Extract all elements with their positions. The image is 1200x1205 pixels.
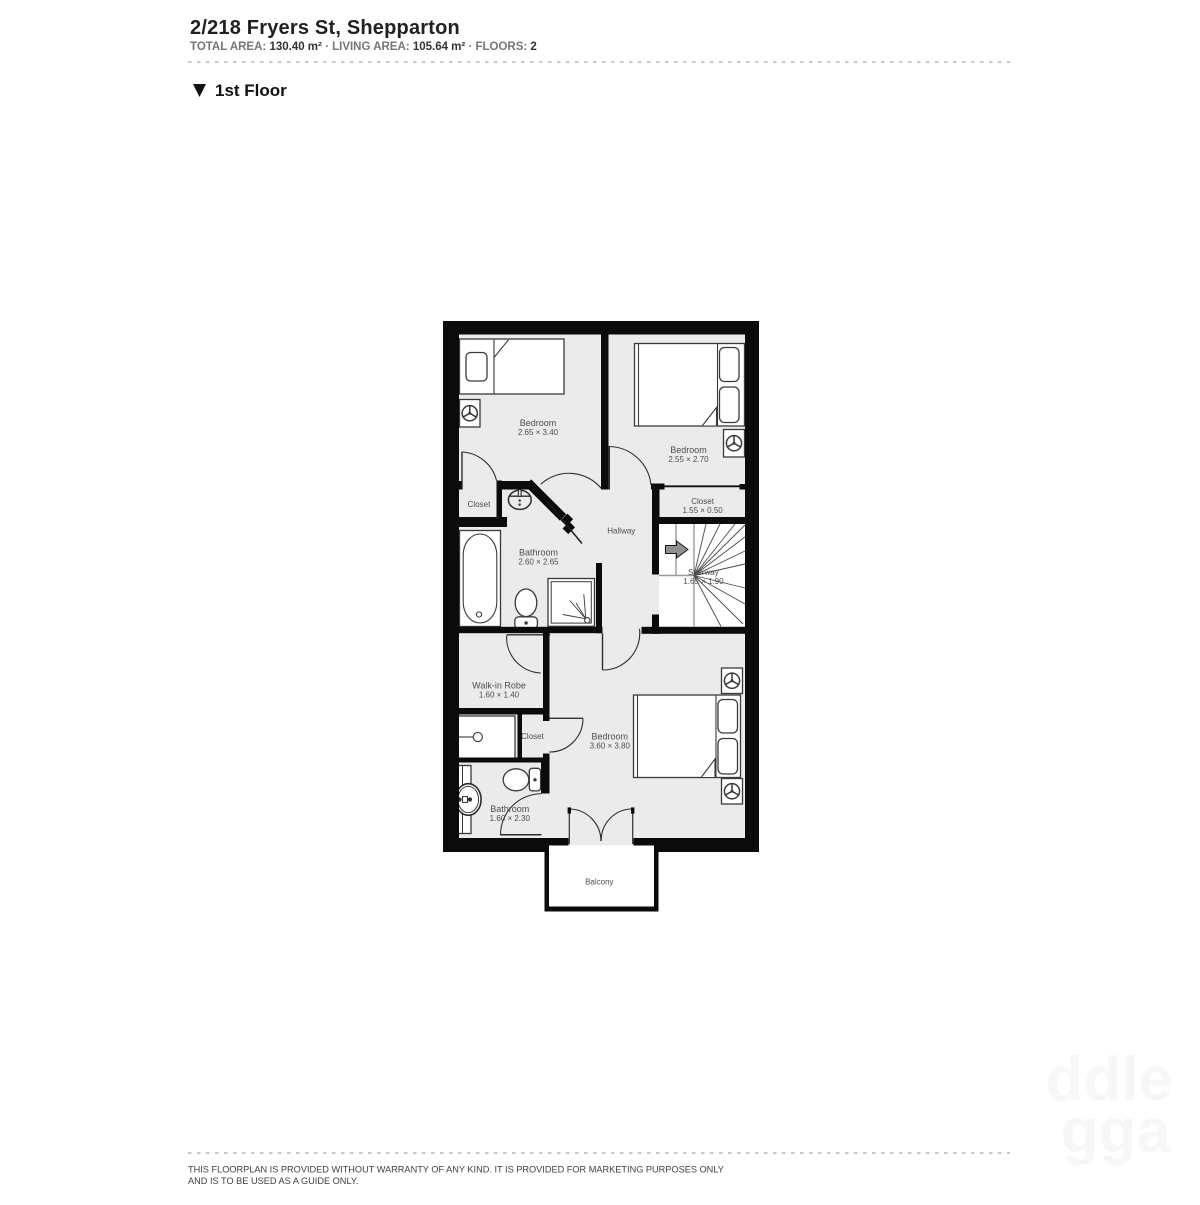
- svg-text:Stairway1.65 × 1.90: Stairway1.65 × 1.90: [683, 568, 724, 586]
- svg-text:Bedroom2.65 × 3.40: Bedroom2.65 × 3.40: [518, 418, 559, 437]
- svg-text:Bathroom2.60 × 2.65: Bathroom2.60 × 2.65: [518, 548, 559, 567]
- svg-text:2/218 Fryers St, Shepparton: 2/218 Fryers St, Shepparton: [190, 17, 460, 39]
- svg-text:Hallway: Hallway: [607, 527, 635, 536]
- svg-text:Bedroom2.55 × 2.70: Bedroom2.55 × 2.70: [668, 445, 709, 464]
- svg-text:gga: gga: [1061, 1097, 1172, 1166]
- svg-text:Bedroom3.60 × 3.80: Bedroom3.60 × 3.80: [590, 732, 631, 751]
- svg-text:1st Floor: 1st Floor: [215, 81, 287, 100]
- svg-text:TOTAL AREA: 130.40 m² · LIVING: TOTAL AREA: 130.40 m² · LIVING AREA: 105…: [190, 41, 537, 53]
- svg-text:Balcony: Balcony: [585, 878, 613, 887]
- svg-text:THIS FLOORPLAN IS PROVIDED WIT: THIS FLOORPLAN IS PROVIDED WITHOUT WARRA…: [188, 1165, 724, 1175]
- svg-text:Closet: Closet: [468, 500, 491, 509]
- svg-text:Closet: Closet: [521, 732, 544, 741]
- svg-text:Walk-in Robe1.60 × 1.40: Walk-in Robe1.60 × 1.40: [472, 681, 526, 700]
- svg-text:AND IS TO BE USED AS A GUIDE O: AND IS TO BE USED AS A GUIDE ONLY.: [188, 1176, 358, 1186]
- svg-text:Bathroom1.60 × 2.30: Bathroom1.60 × 2.30: [490, 804, 531, 823]
